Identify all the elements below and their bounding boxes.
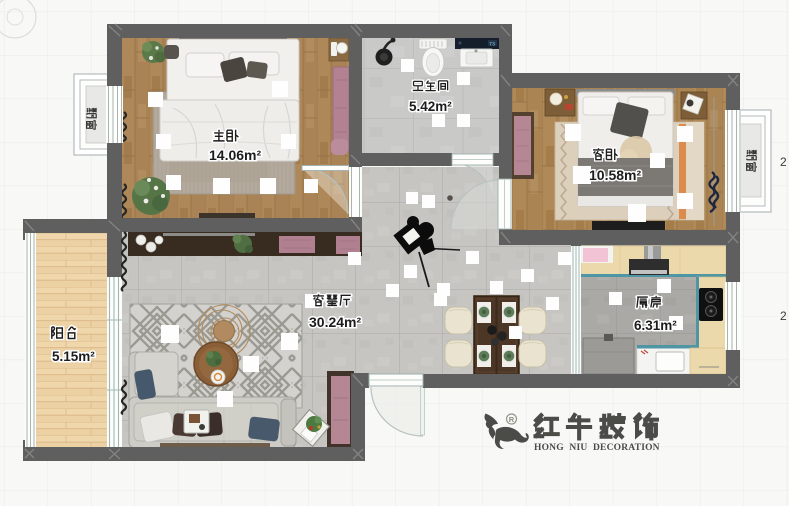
svg-text:5.15m²: 5.15m²: [52, 349, 95, 364]
svg-text:2: 2: [780, 309, 787, 323]
svg-text:2: 2: [780, 155, 787, 169]
svg-text:R: R: [509, 415, 515, 424]
svg-text:HONG NIU DECORATION: HONG NIU DECORATION: [534, 443, 660, 453]
svg-text:6.31m²: 6.31m²: [634, 318, 677, 333]
svg-text:5.42m²: 5.42m²: [409, 99, 452, 114]
svg-text:73: 73: [489, 42, 495, 48]
svg-text:30.24m²: 30.24m²: [309, 314, 361, 330]
svg-text:10.58m²: 10.58m²: [589, 167, 641, 183]
svg-text:14.06m²: 14.06m²: [209, 147, 261, 163]
